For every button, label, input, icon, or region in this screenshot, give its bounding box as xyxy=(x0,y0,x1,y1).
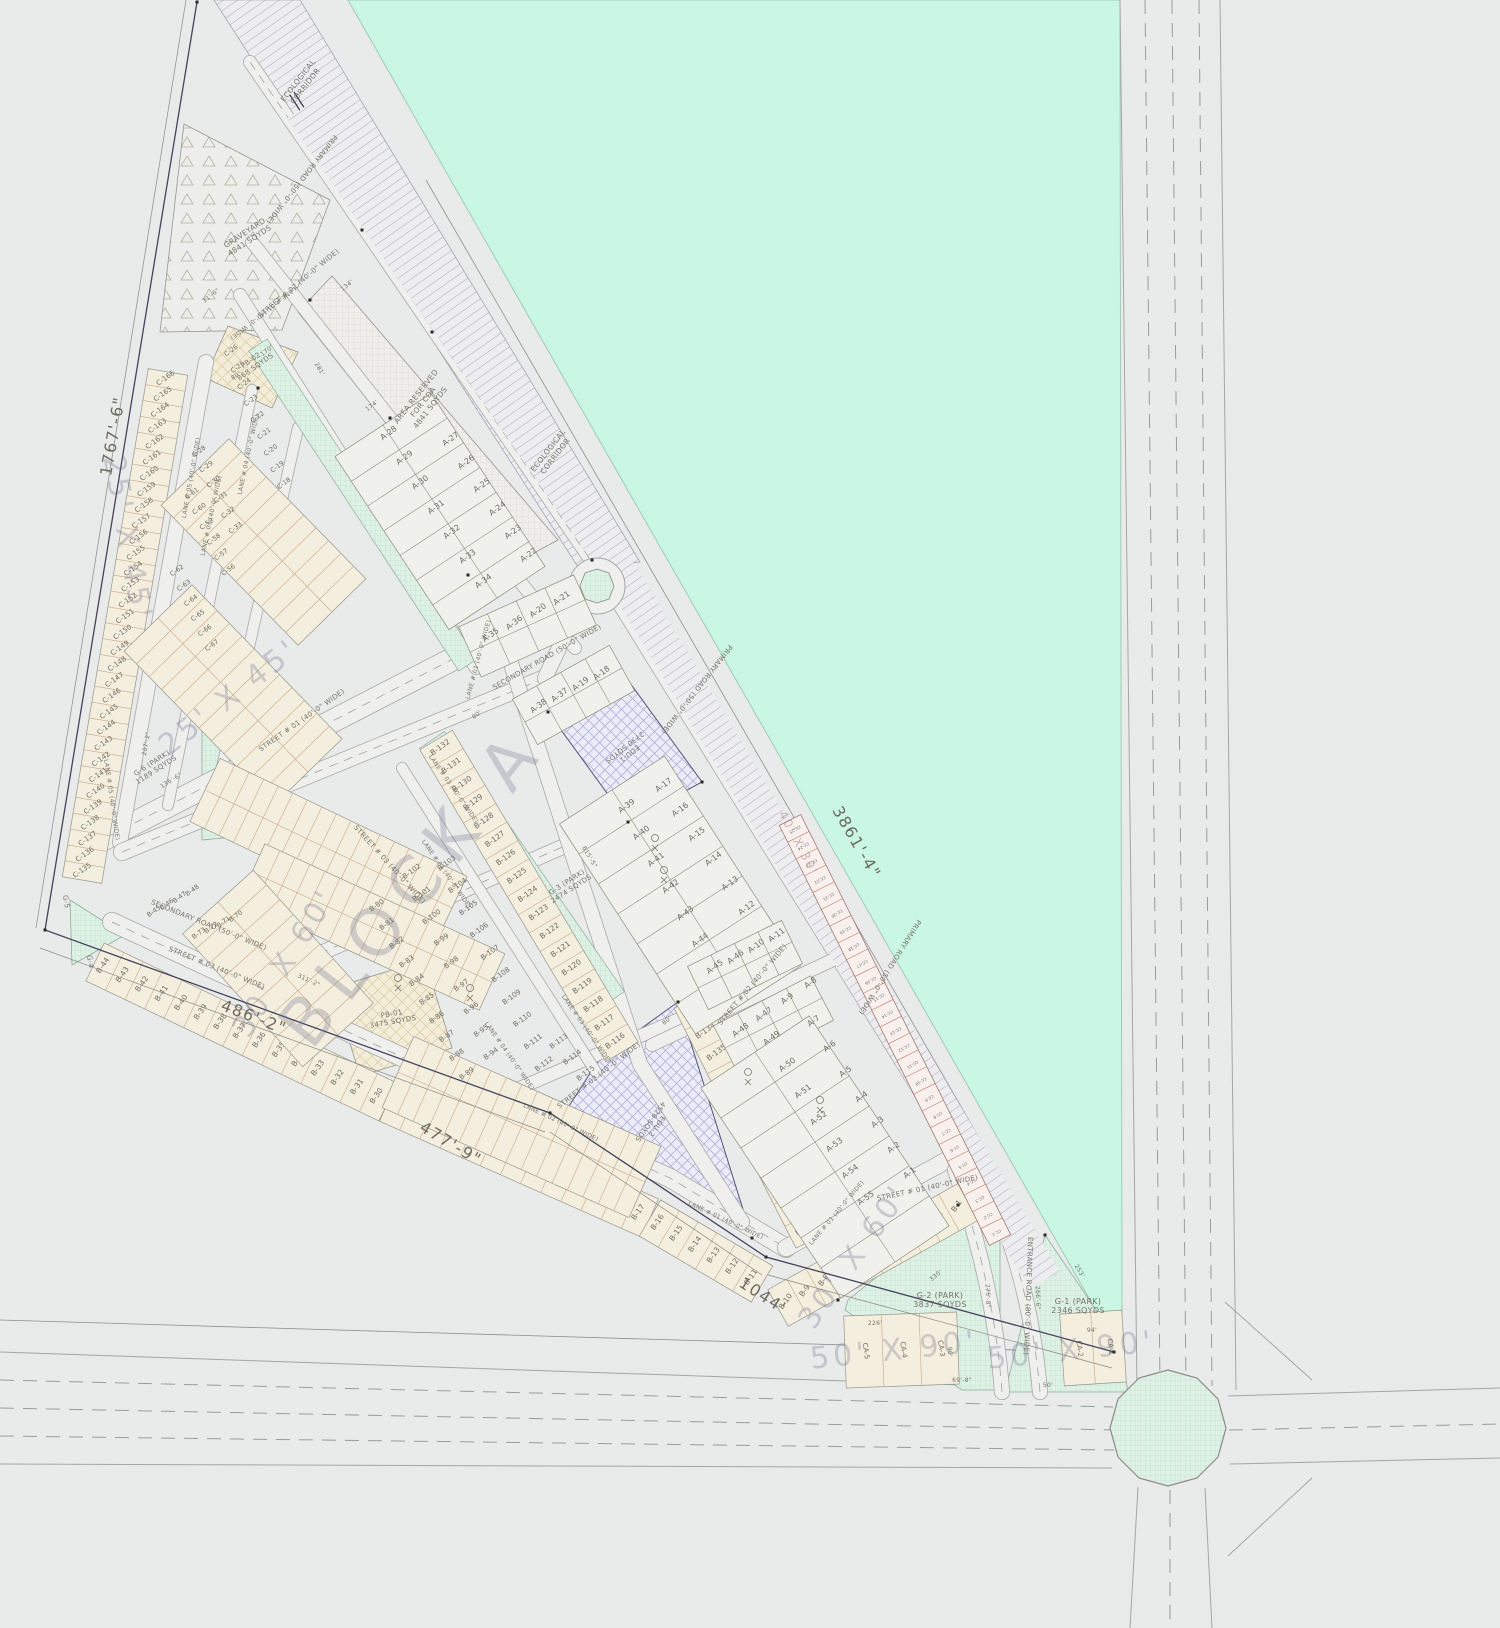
dim-90: 90' xyxy=(946,1347,953,1357)
survey-point xyxy=(591,559,594,562)
svg-text:69'-8": 69'-8" xyxy=(952,1377,972,1384)
svg-text:3837 SQYDS: 3837 SQYDS xyxy=(913,1300,966,1309)
survey-point xyxy=(196,1,199,4)
dim-226: 226' xyxy=(868,1320,882,1327)
survey-point xyxy=(467,574,470,577)
svg-text:2346 SQYDS: 2346 SQYDS xyxy=(1051,1306,1104,1315)
svg-text:90': 90' xyxy=(946,1347,953,1357)
survey-point xyxy=(549,1112,552,1115)
svg-text:226': 226' xyxy=(868,1320,882,1327)
survey-point xyxy=(765,1256,768,1259)
svg-text:94': 94' xyxy=(1087,1327,1097,1334)
svg-text:50': 50' xyxy=(1043,1382,1053,1389)
survey-point xyxy=(309,299,312,302)
survey-point xyxy=(627,821,630,824)
survey-point xyxy=(547,711,550,714)
survey-point xyxy=(431,331,434,334)
park-g1-label: G-1 (PARK)2346 SQYDS xyxy=(1051,1297,1104,1315)
dim-94: 94' xyxy=(1087,1327,1097,1334)
park-g2-label: G-2 (PARK)3837 SQYDS xyxy=(913,1291,966,1309)
svg-text:G-1 (PARK): G-1 (PARK) xyxy=(1055,1297,1102,1306)
dim-266-6: 266'-6" xyxy=(1034,1286,1042,1310)
svg-text:G-2 (PARK): G-2 (PARK) xyxy=(917,1291,964,1300)
dim-69-8: 69'-8" xyxy=(952,1377,972,1384)
survey-point xyxy=(1044,1234,1047,1237)
survey-point xyxy=(837,1299,840,1302)
site-plan-drawing: C-166C-165C-164C-163C-162C-161C-160C-159… xyxy=(0,0,1500,1628)
survey-point xyxy=(701,781,704,784)
svg-text:275'-8": 275'-8" xyxy=(984,1284,992,1308)
survey-point xyxy=(957,1204,960,1207)
survey-point xyxy=(257,387,260,390)
survey-point xyxy=(751,1237,754,1240)
survey-point xyxy=(361,229,364,232)
site-plan-canvas: C-166C-165C-164C-163C-162C-161C-160C-159… xyxy=(0,0,1500,1628)
survey-point xyxy=(677,1001,680,1004)
svg-text:266'-6": 266'-6" xyxy=(1034,1286,1042,1310)
dim-50: 50' xyxy=(1043,1382,1053,1389)
dim-275-8: 275'-8" xyxy=(984,1284,992,1308)
survey-point xyxy=(389,417,392,420)
survey-point xyxy=(1113,1351,1116,1354)
survey-point xyxy=(44,929,47,932)
